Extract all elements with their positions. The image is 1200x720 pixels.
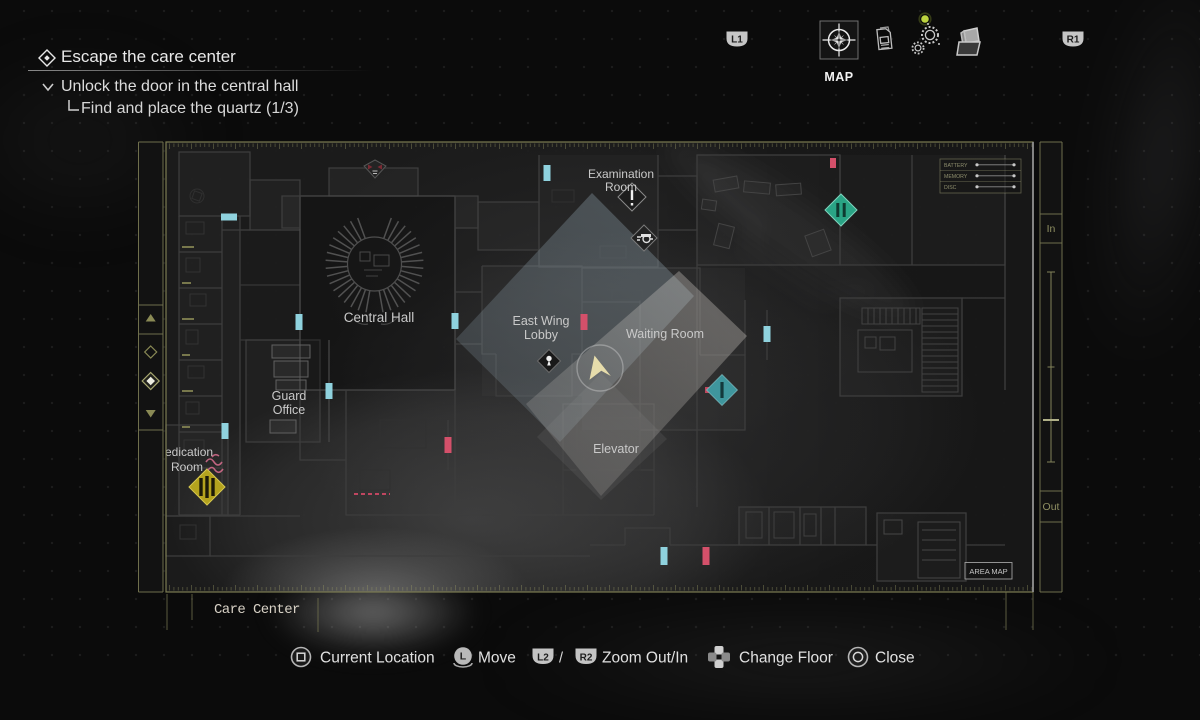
svg-text:L2: L2 — [537, 652, 549, 663]
svg-text:Change Floor: Change Floor — [739, 650, 833, 667]
svg-text:MEMORY: MEMORY — [944, 174, 968, 180]
svg-text:Zoom Out/In: Zoom Out/In — [602, 650, 688, 667]
svg-text:Out: Out — [1043, 501, 1060, 513]
svg-text:BATTERY: BATTERY — [944, 163, 968, 169]
svg-text:Close: Close — [875, 650, 915, 667]
svg-text:Examination: Examination — [588, 167, 654, 181]
svg-text:Room: Room — [605, 180, 637, 194]
svg-text:East Wing: East Wing — [513, 314, 570, 328]
svg-text:Room: Room — [171, 460, 203, 474]
svg-text:Waiting Room: Waiting Room — [626, 327, 704, 341]
svg-text:/: / — [559, 651, 564, 667]
svg-text:Move: Move — [478, 650, 516, 667]
svg-text:Central Hall: Central Hall — [344, 310, 415, 325]
svg-text:DISC: DISC — [944, 185, 957, 191]
svg-text:Elevator: Elevator — [593, 442, 639, 456]
svg-text:Current Location: Current Location — [320, 650, 435, 667]
svg-text:L: L — [460, 651, 467, 663]
svg-text:AREA MAP: AREA MAP — [969, 567, 1007, 576]
svg-text:Guard: Guard — [272, 389, 307, 403]
svg-text:R2: R2 — [580, 652, 593, 663]
svg-text:edication: edication — [165, 445, 213, 459]
svg-text:In: In — [1047, 223, 1056, 235]
svg-text:Lobby: Lobby — [524, 328, 559, 342]
svg-text:Office: Office — [273, 403, 305, 417]
